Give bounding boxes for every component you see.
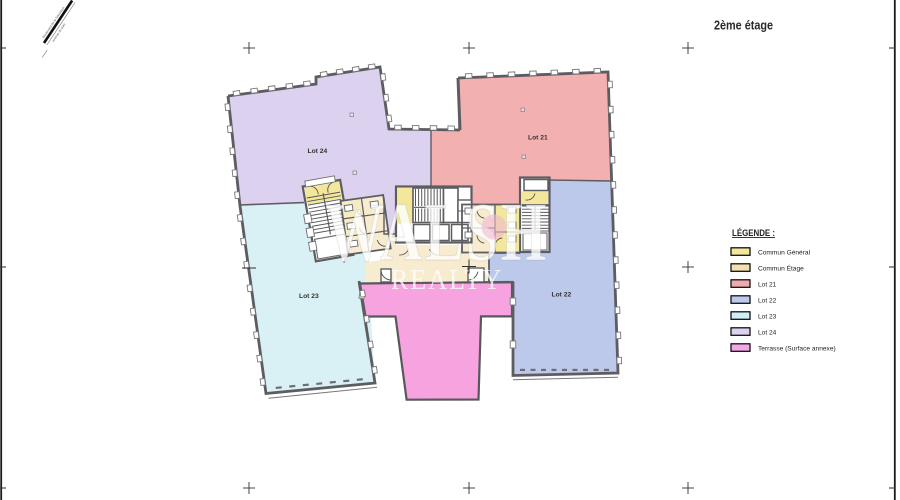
svg-text:Lot 21: Lot 21	[758, 281, 777, 288]
svg-text:Commun Général: Commun Général	[758, 249, 811, 256]
svg-text:Lot 21: Lot 21	[528, 135, 548, 142]
svg-text:Lot 23: Lot 23	[299, 293, 319, 300]
svg-text:Lot 24: Lot 24	[308, 148, 328, 155]
svg-text:Commun Étage: Commun Étage	[758, 263, 804, 272]
svg-text:Lot 23: Lot 23	[758, 313, 777, 320]
svg-text:Lot 22: Lot 22	[758, 297, 777, 304]
svg-text:2ème étage: 2ème étage	[714, 18, 773, 33]
svg-text:Terrasse (Surface annexe): Terrasse (Surface annexe)	[758, 345, 836, 352]
svg-text:Lot 24: Lot 24	[758, 329, 777, 336]
svg-text:LÉGENDE :: LÉGENDE :	[732, 228, 775, 238]
svg-text:REALTY: REALTY	[391, 264, 504, 295]
svg-text:Lot 22: Lot 22	[552, 292, 572, 299]
